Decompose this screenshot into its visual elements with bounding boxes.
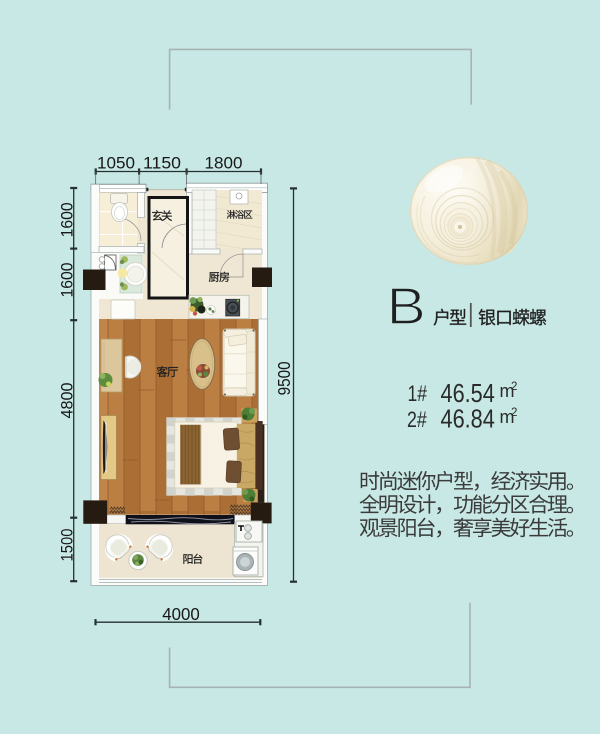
svg-text:1#: 1#: [408, 381, 428, 406]
svg-text:1600: 1600: [58, 202, 76, 237]
svg-text:1600: 1600: [58, 263, 76, 298]
svg-text:1150: 1150: [143, 155, 181, 173]
svg-text:1050: 1050: [97, 155, 135, 173]
svg-text:2: 2: [511, 407, 517, 419]
svg-text:2: 2: [511, 381, 517, 393]
svg-text:1800: 1800: [205, 155, 243, 173]
svg-text:4800: 4800: [58, 383, 76, 419]
svg-text:4000: 4000: [162, 604, 200, 624]
svg-text:2#: 2#: [407, 407, 427, 432]
svg-text:46.84: 46.84: [441, 404, 495, 434]
svg-text:9500: 9500: [274, 361, 294, 395]
svg-text:B: B: [387, 277, 426, 335]
svg-text:1500: 1500: [58, 529, 76, 562]
